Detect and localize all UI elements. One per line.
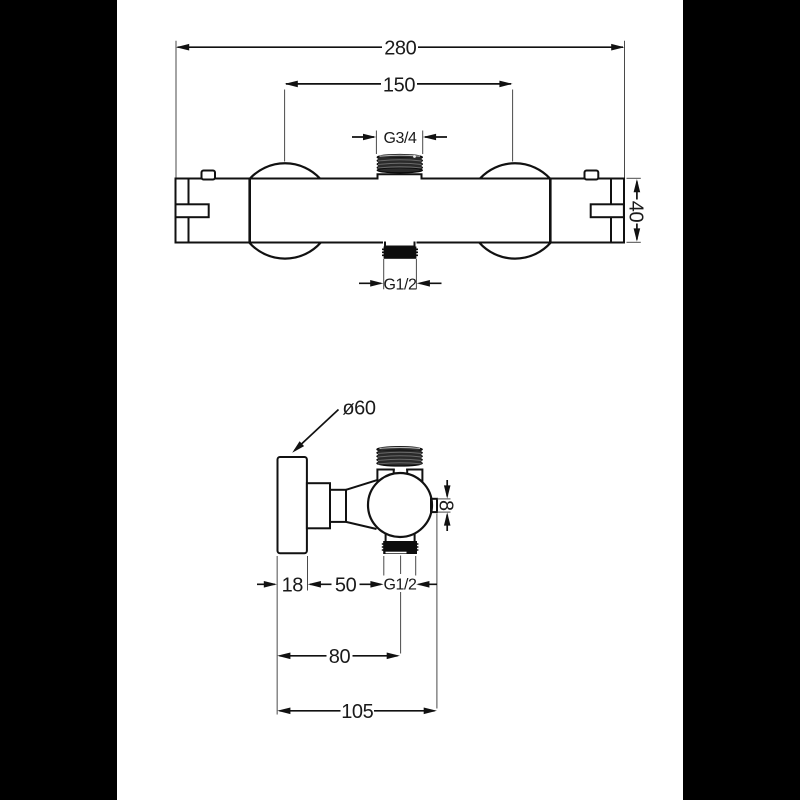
- svg-text:50: 50: [335, 575, 357, 597]
- svg-text:150: 150: [383, 74, 415, 96]
- svg-text:280: 280: [384, 38, 416, 60]
- svg-text:80: 80: [329, 646, 351, 668]
- svg-text:G3/4: G3/4: [383, 130, 417, 147]
- svg-text:105: 105: [341, 701, 373, 723]
- svg-text:G1/2: G1/2: [383, 276, 417, 293]
- svg-text:18: 18: [282, 575, 304, 597]
- svg-text:ø60: ø60: [342, 397, 376, 419]
- svg-text:40: 40: [625, 201, 647, 223]
- svg-text:8: 8: [435, 500, 457, 511]
- svg-text:G1/2: G1/2: [383, 577, 417, 594]
